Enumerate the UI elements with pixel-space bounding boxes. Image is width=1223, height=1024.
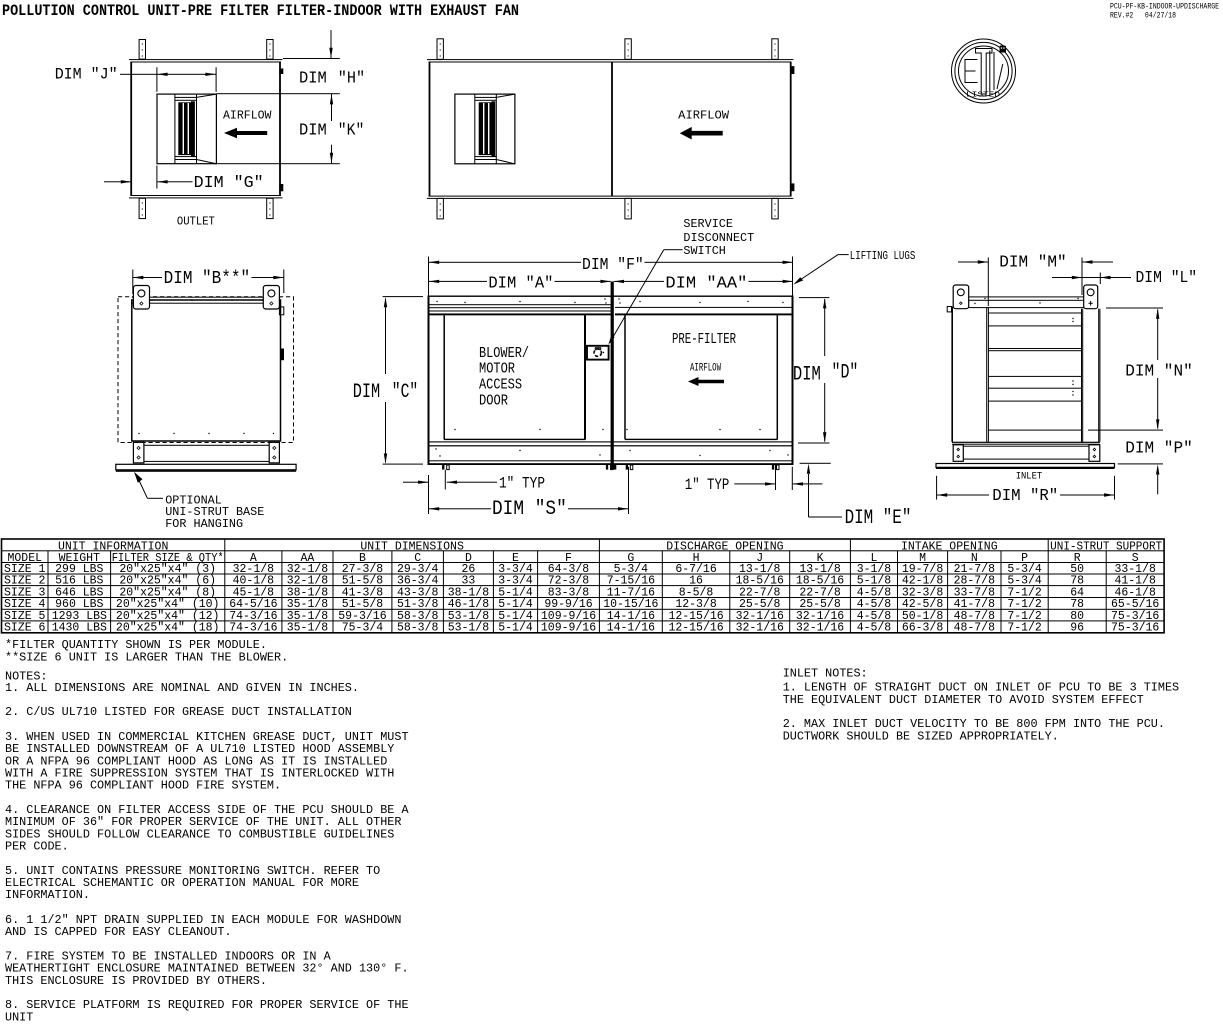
- svg-text:POLLUTION CONTROL UNIT-PRE FIL: POLLUTION CONTROL UNIT-PRE FILTER FILTER…: [2, 2, 519, 20]
- svg-text:DISCONNECT: DISCONNECT: [683, 231, 754, 245]
- svg-text:REV.#2 04/27/18: REV.#2 04/27/18: [1110, 12, 1176, 21]
- svg-text:DIM "B**": DIM "B**": [164, 268, 251, 289]
- svg-text:32-1/16: 32-1/16: [796, 622, 844, 635]
- svg-text:BLOWER/: BLOWER/: [479, 345, 529, 362]
- svg-text:FOR HANGING: FOR HANGING: [165, 517, 243, 531]
- svg-text:35-1/8: 35-1/8: [287, 622, 329, 635]
- svg-text:"H": "H": [338, 70, 365, 89]
- svg-text:DIM "L": DIM "L": [1136, 268, 1198, 287]
- svg-text:INLET NOTES:: INLET NOTES:: [783, 666, 868, 680]
- svg-text:THIS ENCLOSURE IS PROVIDED BY: THIS ENCLOSURE IS PROVIDED BY OTHERS.: [5, 974, 267, 988]
- svg-text:DIM "S": DIM "S": [492, 498, 567, 521]
- svg-text:INLET: INLET: [1016, 470, 1042, 482]
- svg-text:1. ALL DIMENSIONS ARE NOMINAL: 1. ALL DIMENSIONS ARE NOMINAL AND GIVEN …: [5, 681, 359, 695]
- svg-text:DIM "F": DIM "F": [582, 255, 644, 274]
- svg-text:AND IS CAPPED FOR EASY CLEANOU: AND IS CAPPED FOR EASY CLEANOUT.: [5, 925, 232, 939]
- svg-text:2. C/US UL710 LISTED FOR GREAS: 2. C/US UL710 LISTED FOR GREASE DUCT INS…: [5, 705, 352, 719]
- svg-text:OUTLET: OUTLET: [177, 215, 215, 228]
- svg-text:AIRFLOW: AIRFLOW: [223, 108, 272, 122]
- svg-text:INTAKE OPENING: INTAKE OPENING: [901, 540, 998, 553]
- svg-text:DOOR: DOOR: [479, 392, 508, 409]
- svg-text:**SIZE 6 UNIT IS LARGER THAN T: **SIZE 6 UNIT IS LARGER THAN THE BLOWER.: [5, 650, 288, 664]
- svg-text:SERVICE: SERVICE: [683, 217, 733, 231]
- svg-text:DIM "P": DIM "P": [1125, 438, 1192, 457]
- svg-text:LISTED: LISTED: [966, 92, 1001, 100]
- svg-text:UNIT DIMENSIONS: UNIT DIMENSIONS: [360, 540, 464, 553]
- svg-text:75-3/16: 75-3/16: [1111, 622, 1159, 635]
- svg-text:1" TYP: 1" TYP: [685, 476, 730, 494]
- svg-text:DIM: DIM: [299, 70, 327, 89]
- svg-text:THE NFPA 96 COMPLIANT HOOD FIR: THE NFPA 96 COMPLIANT HOOD FIRE SYSTEM.: [5, 779, 281, 793]
- svg-text:48-7/8: 48-7/8: [954, 622, 996, 635]
- svg-text:DIM: DIM: [353, 381, 380, 404]
- svg-text:58-3/8: 58-3/8: [397, 622, 439, 635]
- svg-text:"C": "C": [392, 381, 418, 404]
- svg-text:4-5/8: 4-5/8: [857, 622, 892, 635]
- svg-text:MOTOR: MOTOR: [479, 361, 515, 378]
- svg-text:DIM: DIM: [793, 363, 821, 386]
- svg-text:PCU-PF-KB-INDOOR-UPDISCHARGE: PCU-PF-KB-INDOOR-UPDISCHARGE: [1110, 3, 1219, 12]
- svg-text:DIM "J": DIM "J": [55, 66, 118, 84]
- svg-text:"K": "K": [338, 121, 365, 140]
- svg-text:UNI-STRUT SUPPORT: UNI-STRUT SUPPORT: [1050, 540, 1162, 553]
- svg-text:PER CODE.: PER CODE.: [5, 840, 69, 854]
- svg-text:32-1/16: 32-1/16: [736, 622, 784, 635]
- svg-text:1430 LBS: 1430 LBS: [52, 622, 107, 635]
- svg-text:66-3/8: 66-3/8: [902, 622, 944, 635]
- svg-text:96: 96: [1070, 622, 1084, 635]
- svg-text:DISCHARGE OPENING: DISCHARGE OPENING: [666, 540, 783, 553]
- svg-text:53-1/8: 53-1/8: [448, 622, 490, 635]
- svg-text:DUCTWORK SHOULD BE SIZED APPRO: DUCTWORK SHOULD BE SIZED APPROPRIATELY.: [783, 730, 1059, 744]
- svg-text:ACCESS: ACCESS: [479, 377, 522, 394]
- svg-text:DIM "AA": DIM "AA": [665, 273, 747, 292]
- svg-text:AIRFLOW: AIRFLOW: [690, 362, 721, 374]
- svg-text:DIM "M": DIM "M": [999, 252, 1066, 271]
- svg-text:"D": "D": [832, 362, 859, 385]
- svg-text:UNIT: UNIT: [5, 1010, 33, 1024]
- svg-text:SIZE 6: SIZE 6: [4, 622, 46, 635]
- svg-text:74-3/16: 74-3/16: [229, 622, 277, 635]
- svg-text:1" TYP: 1" TYP: [499, 474, 545, 492]
- svg-text:DIM "N": DIM "N": [1125, 362, 1192, 381]
- svg-text:20"x25"x4" (18): 20"x25"x4" (18): [116, 622, 220, 635]
- svg-text:DIM: DIM: [299, 121, 327, 140]
- svg-text:8. SERVICE PLATFORM IS REQUIRE: 8. SERVICE PLATFORM IS REQUIRED FOR PROP…: [5, 998, 409, 1012]
- svg-text:DIM "R": DIM "R": [992, 486, 1058, 505]
- svg-text:109-9/16: 109-9/16: [541, 622, 596, 635]
- svg-text:DIM "E": DIM "E": [845, 507, 912, 530]
- svg-text:14-1/16: 14-1/16: [607, 622, 655, 635]
- svg-text:DIM "A": DIM "A": [488, 273, 553, 292]
- svg-text:5-1/4: 5-1/4: [498, 622, 533, 635]
- svg-text:PRE-FILTER: PRE-FILTER: [672, 331, 736, 348]
- svg-text:THE EQUIVALENT DUCT DIAMETER T: THE EQUIVALENT DUCT DIAMETER TO AVOID SY…: [783, 693, 1144, 707]
- svg-text:LIFTING LUGS: LIFTING LUGS: [850, 249, 916, 263]
- svg-text:75-3/4: 75-3/4: [342, 622, 384, 635]
- svg-text:SWITCH: SWITCH: [683, 244, 725, 258]
- svg-text:7-1/2: 7-1/2: [1007, 622, 1042, 635]
- svg-text:INFORMATION.: INFORMATION.: [5, 888, 90, 902]
- svg-text:AIRFLOW: AIRFLOW: [678, 109, 730, 123]
- svg-text:DIM "G": DIM "G": [194, 174, 264, 193]
- svg-text:12-15/16: 12-15/16: [668, 622, 723, 635]
